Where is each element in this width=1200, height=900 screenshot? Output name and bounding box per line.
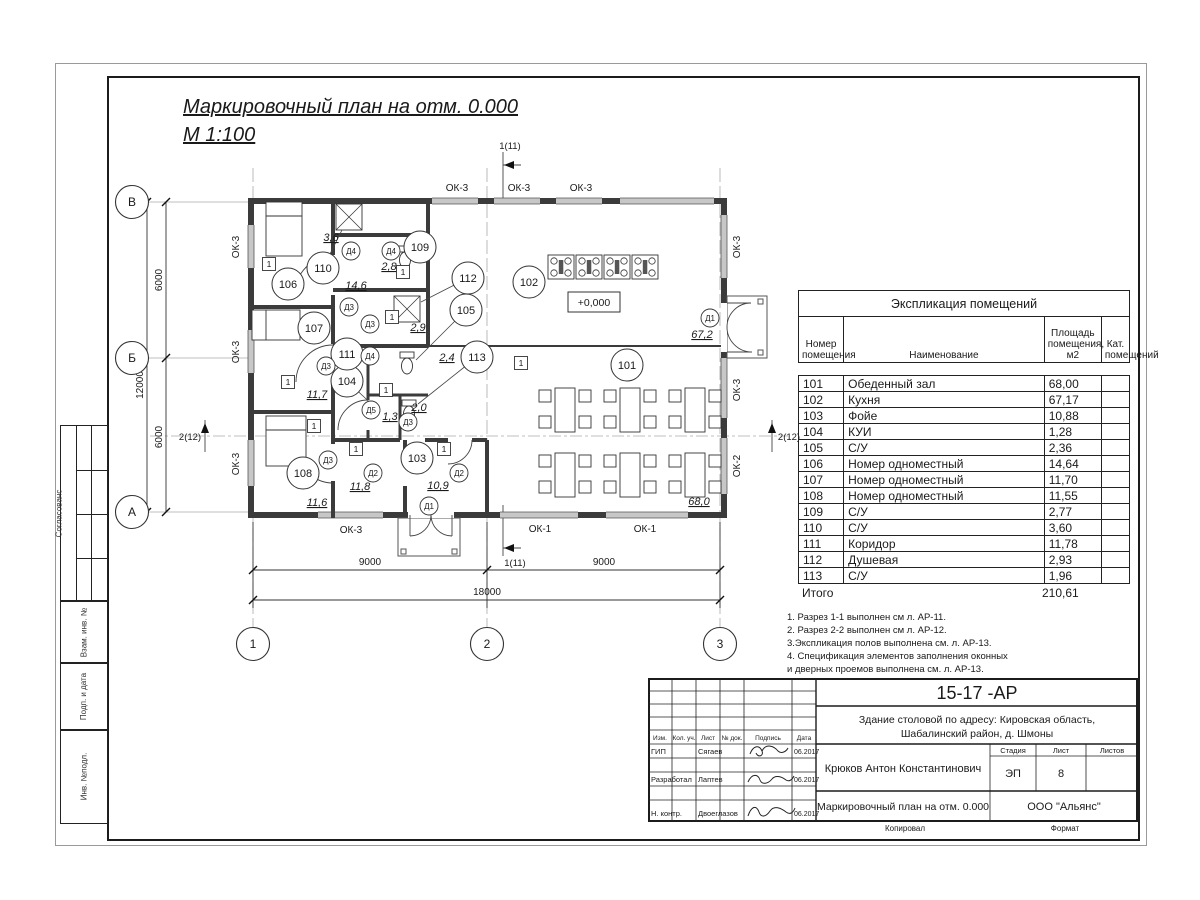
legend-cell-area: 1,28 [1044,424,1101,440]
legend-cell-area: 68,00 [1044,376,1101,392]
legend-col-name: Наименование [844,317,1045,363]
toilet [400,352,414,374]
window-label-ok2: ОК-2 [732,454,743,477]
legend-total-row: Итого 210,61 [798,586,1130,600]
stamp-name-gip: Сягаев [698,747,722,756]
legend-cell-area: 2,93 [1044,552,1101,568]
legend-row: 109 С/У 2,77 [799,504,1130,520]
strip-line [76,514,107,515]
area-102: 67,2 [691,329,712,341]
area-103: 10,9 [427,480,448,492]
door-label-d3: Д3 [365,320,375,329]
legend-cell-number: 101 [799,376,844,392]
window-label-ok3: ОК-3 [446,183,469,194]
legend-cell-name: С/У [844,520,1045,536]
stamp-col-kol: Кол. уч. [672,735,695,742]
title-block: 15-17 -АР Здание столовой по адресу: Кир… [648,678,1138,827]
room-number-112: 112 [459,273,477,285]
window-label-ok1: ОК-1 [529,524,552,535]
legend-col-cat: Кат. помещений [1101,317,1129,363]
legend-cell-name: Номер одноместный [844,488,1045,504]
door-label-d3: Д3 [321,362,331,371]
room-number-111: 111 [339,349,356,361]
axis-letter-a: А [128,505,136,519]
legend-cell-number: 109 [799,504,844,520]
legend-cell-name: Кухня [844,392,1045,408]
stamp-role-gip: ГИП [651,747,666,756]
legend-cell-number: 112 [799,552,844,568]
window-label-ok1: ОК-1 [634,524,657,535]
legend-cell-cat [1101,552,1129,568]
legend-row: 106 Номер одноместный 14,64 [799,456,1130,472]
stamp-doc-number: 15-17 -АР [936,683,1017,703]
legend-cell-number: 102 [799,392,844,408]
legend-cell-name: Душевая [844,552,1045,568]
area-108: 11,6 [307,497,328,509]
stamp-col-dok: № док. [722,735,743,742]
stamp-col-podpis: Подпись [755,735,781,742]
legend-cell-area: 10,88 [1044,408,1101,424]
note-line: и дверных проемов выполнена см. л. АР-13… [787,663,1132,676]
door-label-d3: Д3 [403,418,413,427]
strip-inv: Инв. №подл. [60,729,108,824]
area-111: 11,8 [350,481,371,493]
door-label-d3: Д3 [344,303,354,312]
format-label: Формат [1020,824,1110,833]
stamp-architect: Крюков Антон Константинович [825,763,982,775]
axis-letter-b: Б [128,351,136,365]
door-label-d5: Д5 [366,406,376,415]
area-109: 2,8 [380,261,397,273]
stamp-sheet-value: 8 [1058,768,1064,780]
legend-cell-area: 3,60 [1044,520,1101,536]
legend-cell-name: Номер одноместный [844,472,1045,488]
legend-cell-name: Фойе [844,408,1045,424]
note-line: 3.Экспликация полов выполнена см. л. АР-… [787,637,1132,650]
legend-cell-number: 104 [799,424,844,440]
legend-cell-cat [1101,488,1129,504]
section-1-11-top: 1(11) [499,141,520,152]
legend-row: 103 Фойе 10,88 [799,408,1130,424]
marker-1: 1 [390,312,395,322]
legend-row: 102 Кухня 67,17 [799,392,1130,408]
strip-podp-label: Подп. и дата [80,673,89,720]
stamp-sheet-label: Лист [1053,746,1070,755]
legend-cell-name: Коридор [844,536,1045,552]
legend-cell-area: 11,55 [1044,488,1101,504]
legend-cell-area: 11,78 [1044,536,1101,552]
door-label-d2: Д2 [368,469,378,478]
legend-cell-area: 14,64 [1044,456,1101,472]
legend-cell-number: 108 [799,488,844,504]
legend-total-label: Итого [798,586,1042,600]
window-label-ok3: ОК-3 [570,183,593,194]
legend-cell-name: С/У [844,504,1045,520]
legend-cell-cat [1101,536,1129,552]
legend-row: 112 Душевая 2,93 [799,552,1130,568]
stamp-role-ncontr: Н. контр. [651,809,682,818]
stamp-col-list: Лист [701,735,715,742]
legend-cell-number: 110 [799,520,844,536]
room-number-105: 105 [457,305,475,317]
shower-tray [336,204,362,230]
stamp-date-gip: 06.2017 [794,749,819,756]
room-number-109: 109 [411,242,429,254]
stamp-role-dev: Разработал [651,775,692,784]
legend-col-number: Номер помещения [799,317,844,363]
legend-cell-number: 107 [799,472,844,488]
axis-number-3: 3 [717,637,724,651]
window-label-ok3: ОК-3 [340,525,363,536]
stamp-date-ncontr: 06.2017 [794,811,819,818]
room-number-104: 104 [338,376,356,388]
dim-12000: 12000 [135,371,146,399]
legend-cell-area: 67,17 [1044,392,1101,408]
marker-1: 1 [312,421,317,431]
legend-rows-table: 101 Обеденный зал 68,00 102 Кухня 67,17 … [798,375,1130,584]
marker-1: 1 [442,444,447,454]
beds [252,202,306,466]
stamp-stage-value: ЭП [1005,768,1021,780]
strip-line [76,470,107,471]
dining-tables [539,388,721,497]
strip-inv-label: Инв. №подл. [80,753,89,801]
dim-9000-left: 9000 [359,557,382,568]
legend-cell-cat [1101,472,1129,488]
kitchen-equipment [548,255,658,279]
stamp-date-dev: 06.2017 [794,777,819,784]
legend-cell-cat [1101,376,1129,392]
legend-row: 111 Коридор 11,78 [799,536,1130,552]
legend-row: 113 С/У 1,96 [799,568,1130,584]
legend-cell-number: 113 [799,568,844,584]
floor-plan: 6000 6000 12000 9000 9000 18000 В Б А 1 … [110,120,800,670]
legend-header-table: Экспликация помещений Номер помещения На… [798,290,1130,363]
level-mark: +0,000 [578,297,611,309]
area-104: 1,3 [382,411,398,423]
legend-row: 101 Обеденный зал 68,00 [799,376,1130,392]
strip-agreed: Согласованс [60,425,108,602]
legend-cell-name: КУИ [844,424,1045,440]
room-number-110: 110 [314,263,332,275]
note-line: 1. Разрез 1-1 выполнен см л. АР-11. [787,611,1132,624]
marker-1: 1 [384,385,389,395]
note-line: 2. Разрез 2-2 выполнен см л. АР-12. [787,624,1132,637]
legend-title: Экспликация помещений [799,291,1130,317]
marker-1: 1 [519,358,524,368]
stamp-stage-label: Стадия [1000,746,1026,755]
drawing-notes: 1. Разрез 1-1 выполнен см л. АР-11.2. Ра… [787,611,1132,676]
copied-by-label: Копировал [860,824,950,833]
legend-cell-area: 11,70 [1044,472,1101,488]
door-label-d4: Д4 [346,247,356,256]
legend-cell-cat [1101,456,1129,472]
room-number-103: 103 [408,453,426,465]
strip-agreed-label: Согласованс [54,490,63,538]
axis-number-2: 2 [484,637,491,651]
dim-18000: 18000 [473,587,501,598]
legend-cell-number: 111 [799,536,844,552]
area-110: 3,6 [323,232,339,244]
stamp-sheets-label: Листов [1100,746,1124,755]
marker-1: 1 [286,377,291,387]
stamp-address-line1: Здание столовой по адресу: Кировская обл… [859,714,1095,726]
area-107: 11,7 [307,389,328,401]
room-number-108: 108 [294,468,312,480]
stamp-address-line2: Шабалинский район, д. Шмоны [901,728,1053,740]
stamp-sheet-title: Маркировочный план на отм. 0.000 [817,801,989,813]
strip-vzam: Взам. инв. № [60,600,108,664]
window-label-ok3: ОК-3 [231,235,242,258]
window-label-ok3: ОК-3 [732,235,743,258]
room-number-113: 113 [468,352,486,364]
area-112: 2,9 [409,322,425,334]
legend-cell-name: С/У [844,440,1045,456]
dim-6000-bottom: 6000 [154,425,165,448]
room-number-106: 106 [279,279,297,291]
legend-row: 105 С/У 2,36 [799,440,1130,456]
door-label-d4: Д4 [386,247,396,256]
legend-row: 104 КУИ 1,28 [799,424,1130,440]
section-2-12-left: 2(12) [179,432,201,443]
strip-vzam-label: Взам. инв. № [80,607,89,657]
section-1-11-bottom: 1(11) [504,558,525,569]
legend-cell-number: 105 [799,440,844,456]
room-number-107: 107 [305,323,323,335]
section-2-12-right: 2(12) [778,432,800,443]
dim-9000-right: 9000 [593,557,616,568]
legend-cell-area: 2,77 [1044,504,1101,520]
legend-cell-cat [1101,424,1129,440]
legend-cell-cat [1101,568,1129,584]
door-label-d4: Д4 [365,352,375,361]
stamp-org: ООО "Альянс" [1027,801,1101,813]
door-label-d2: Д2 [454,469,464,478]
door-label-d1: Д1 [424,502,434,511]
room-number-102: 102 [520,277,538,289]
window-label-ok3: ОК-3 [508,183,531,194]
legend-cell-number: 106 [799,456,844,472]
legend-cell-number: 103 [799,408,844,424]
room-number-101: 101 [618,360,636,372]
note-line: 4. Спецификация элементов заполнения око… [787,650,1132,663]
stamp-col-data: Дата [797,735,812,742]
plan-title: Маркировочный план на отм. 0.000 [183,93,518,121]
legend-cell-cat [1101,520,1129,536]
legend-cell-cat [1101,408,1129,424]
legend-cell-area: 2,36 [1044,440,1101,456]
marker-1: 1 [401,267,406,277]
marker-1: 1 [354,444,359,454]
legend-row: 107 Номер одноместный 11,70 [799,472,1130,488]
legend-cell-area: 1,96 [1044,568,1101,584]
area-101: 68,0 [688,496,710,508]
stamp-name-dev: Лаптев [698,775,723,784]
legend-cell-name: Обеденный зал [844,376,1045,392]
legend-cell-cat [1101,504,1129,520]
legend-total-value: 210,61 [1042,586,1079,600]
legend-cell-name: Номер одноместный [844,456,1045,472]
stamp-name-ncontr: Двоеглазов [698,809,738,818]
axis-number-1: 1 [250,637,257,651]
dim-6000-top: 6000 [154,268,165,291]
legend-col-area: Площадь помещения, м2 [1044,317,1101,363]
legend-cell-cat [1101,392,1129,408]
legend-cell-cat [1101,440,1129,456]
strip-podp: Подп. и дата [60,662,108,731]
room-legend: Экспликация помещений Номер помещения На… [798,290,1130,600]
legend-cell-name: С/У [844,568,1045,584]
door-label-d1: Д1 [705,314,715,323]
door-label-d3: Д3 [323,456,333,465]
drawing-sheet: Согласованс Взам. инв. № Подп. и дата Ин… [0,0,1200,900]
window-label-ok3: ОК-3 [231,340,242,363]
area-105: 2,4 [438,352,454,364]
area-113: 2,0 [410,402,427,414]
window-label-ok3: ОК-3 [732,378,743,401]
legend-row: 110 С/У 3,60 [799,520,1130,536]
strip-line [76,558,107,559]
marker-1: 1 [267,259,272,269]
window-label-ok3: ОК-3 [231,452,242,475]
area-106: 14,6 [345,280,367,292]
axis-letter-v: В [128,195,136,209]
stamp-col-izm: Изм. [653,735,667,742]
legend-row: 108 Номер одноместный 11,55 [799,488,1130,504]
